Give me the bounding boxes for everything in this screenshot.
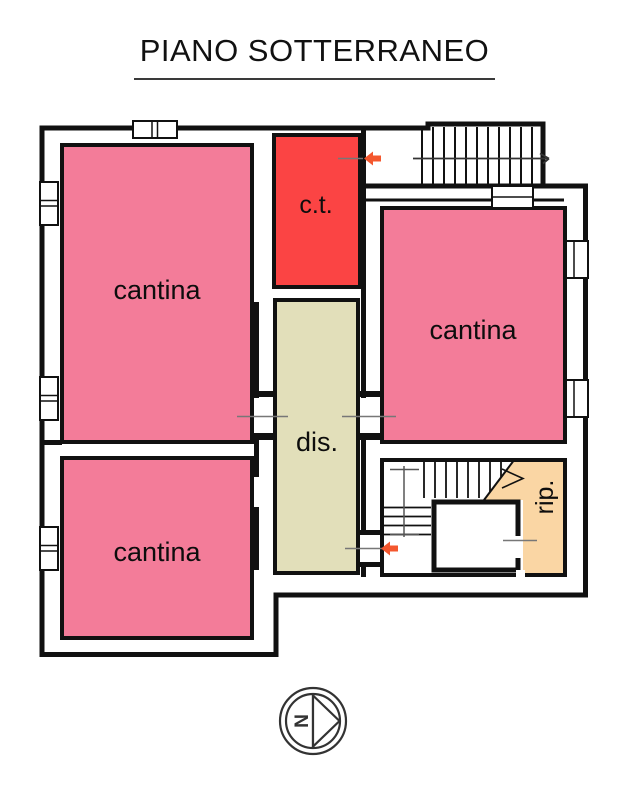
- window-right-1: [566, 241, 588, 278]
- room-label-cantina-top-left: cantina: [113, 275, 201, 305]
- window-under-stairs: [492, 186, 533, 208]
- staircase-top: [413, 127, 549, 184]
- stair-void-door-gap: [513, 536, 522, 558]
- compass-north-label: N: [289, 714, 310, 728]
- room-label-cantina-right: cantina: [429, 315, 517, 345]
- floor-plan-svg: cantina c.t. cantina cantina dis. rip. N: [0, 0, 629, 800]
- stair-treads-top: [422, 127, 532, 184]
- stair-void: [434, 502, 518, 570]
- stair-wall-gap: [516, 570, 525, 579]
- north-compass: N: [280, 688, 346, 754]
- window-left-3: [40, 527, 58, 570]
- staircase-bottom: [382, 460, 565, 579]
- window-top: [133, 121, 177, 138]
- room-label-boiler: c.t.: [299, 191, 332, 219]
- room-label-hallway: dis.: [296, 427, 338, 457]
- window-right-2: [566, 380, 588, 417]
- window-left-2: [40, 377, 58, 420]
- compass-needle: [313, 696, 340, 747]
- window-left-1: [40, 182, 58, 225]
- room-label-cantina-bottom-left: cantina: [113, 537, 201, 567]
- room-label-storage: rip.: [531, 480, 559, 515]
- entry-arrow-boiler: [364, 152, 381, 166]
